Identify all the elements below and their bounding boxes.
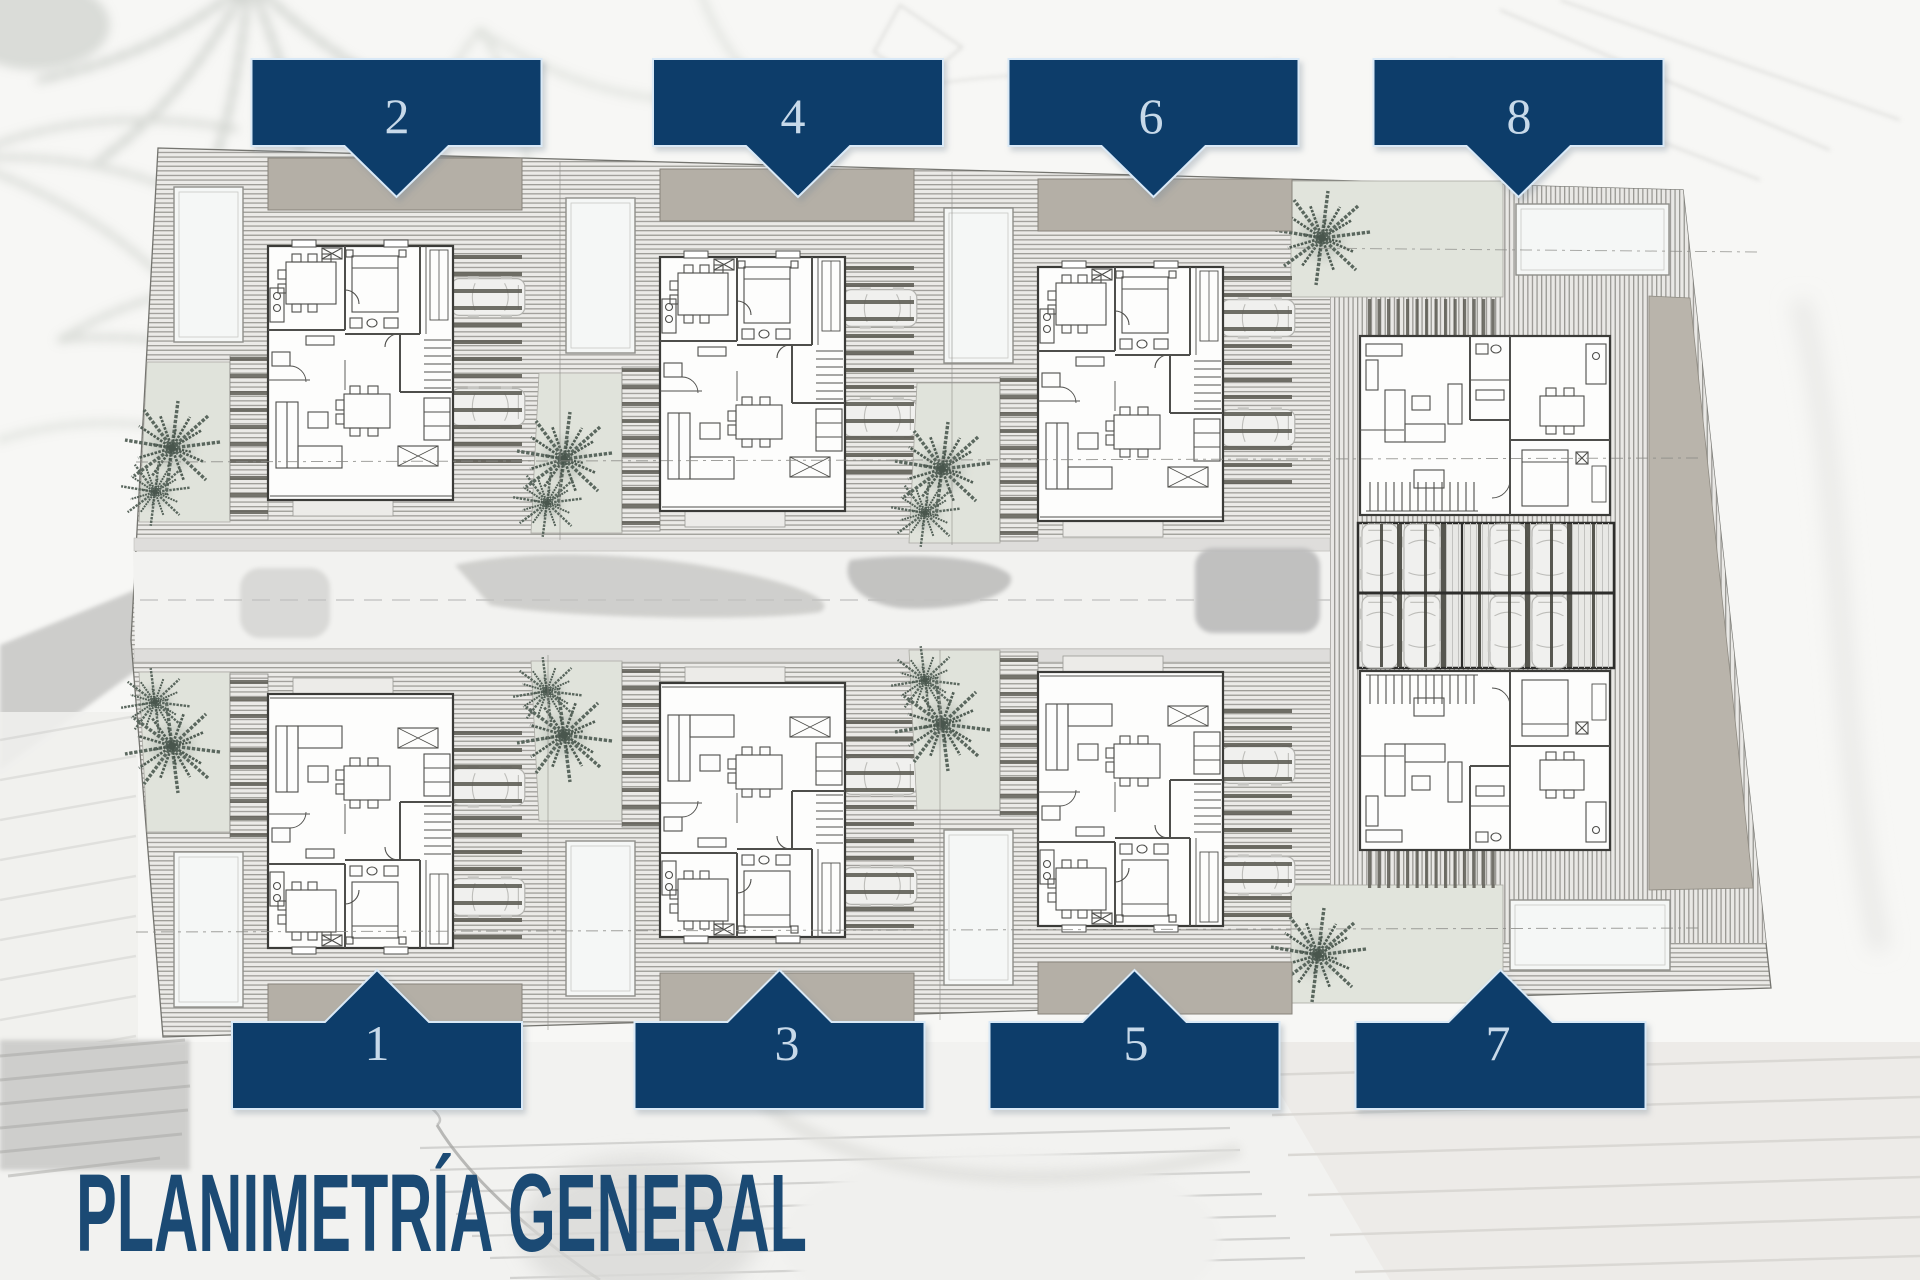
svg-text:1: 1 <box>365 1015 390 1071</box>
svg-text:7: 7 <box>1486 1015 1511 1071</box>
svg-text:2: 2 <box>385 88 410 144</box>
svg-text:5: 5 <box>1124 1015 1149 1071</box>
svg-text:PLANIMETRÍA GENERAL: PLANIMETRÍA GENERAL <box>76 1152 807 1275</box>
svg-text:3: 3 <box>775 1015 800 1071</box>
svg-text:4: 4 <box>781 88 806 144</box>
svg-text:6: 6 <box>1139 88 1164 144</box>
svg-text:8: 8 <box>1507 88 1532 144</box>
